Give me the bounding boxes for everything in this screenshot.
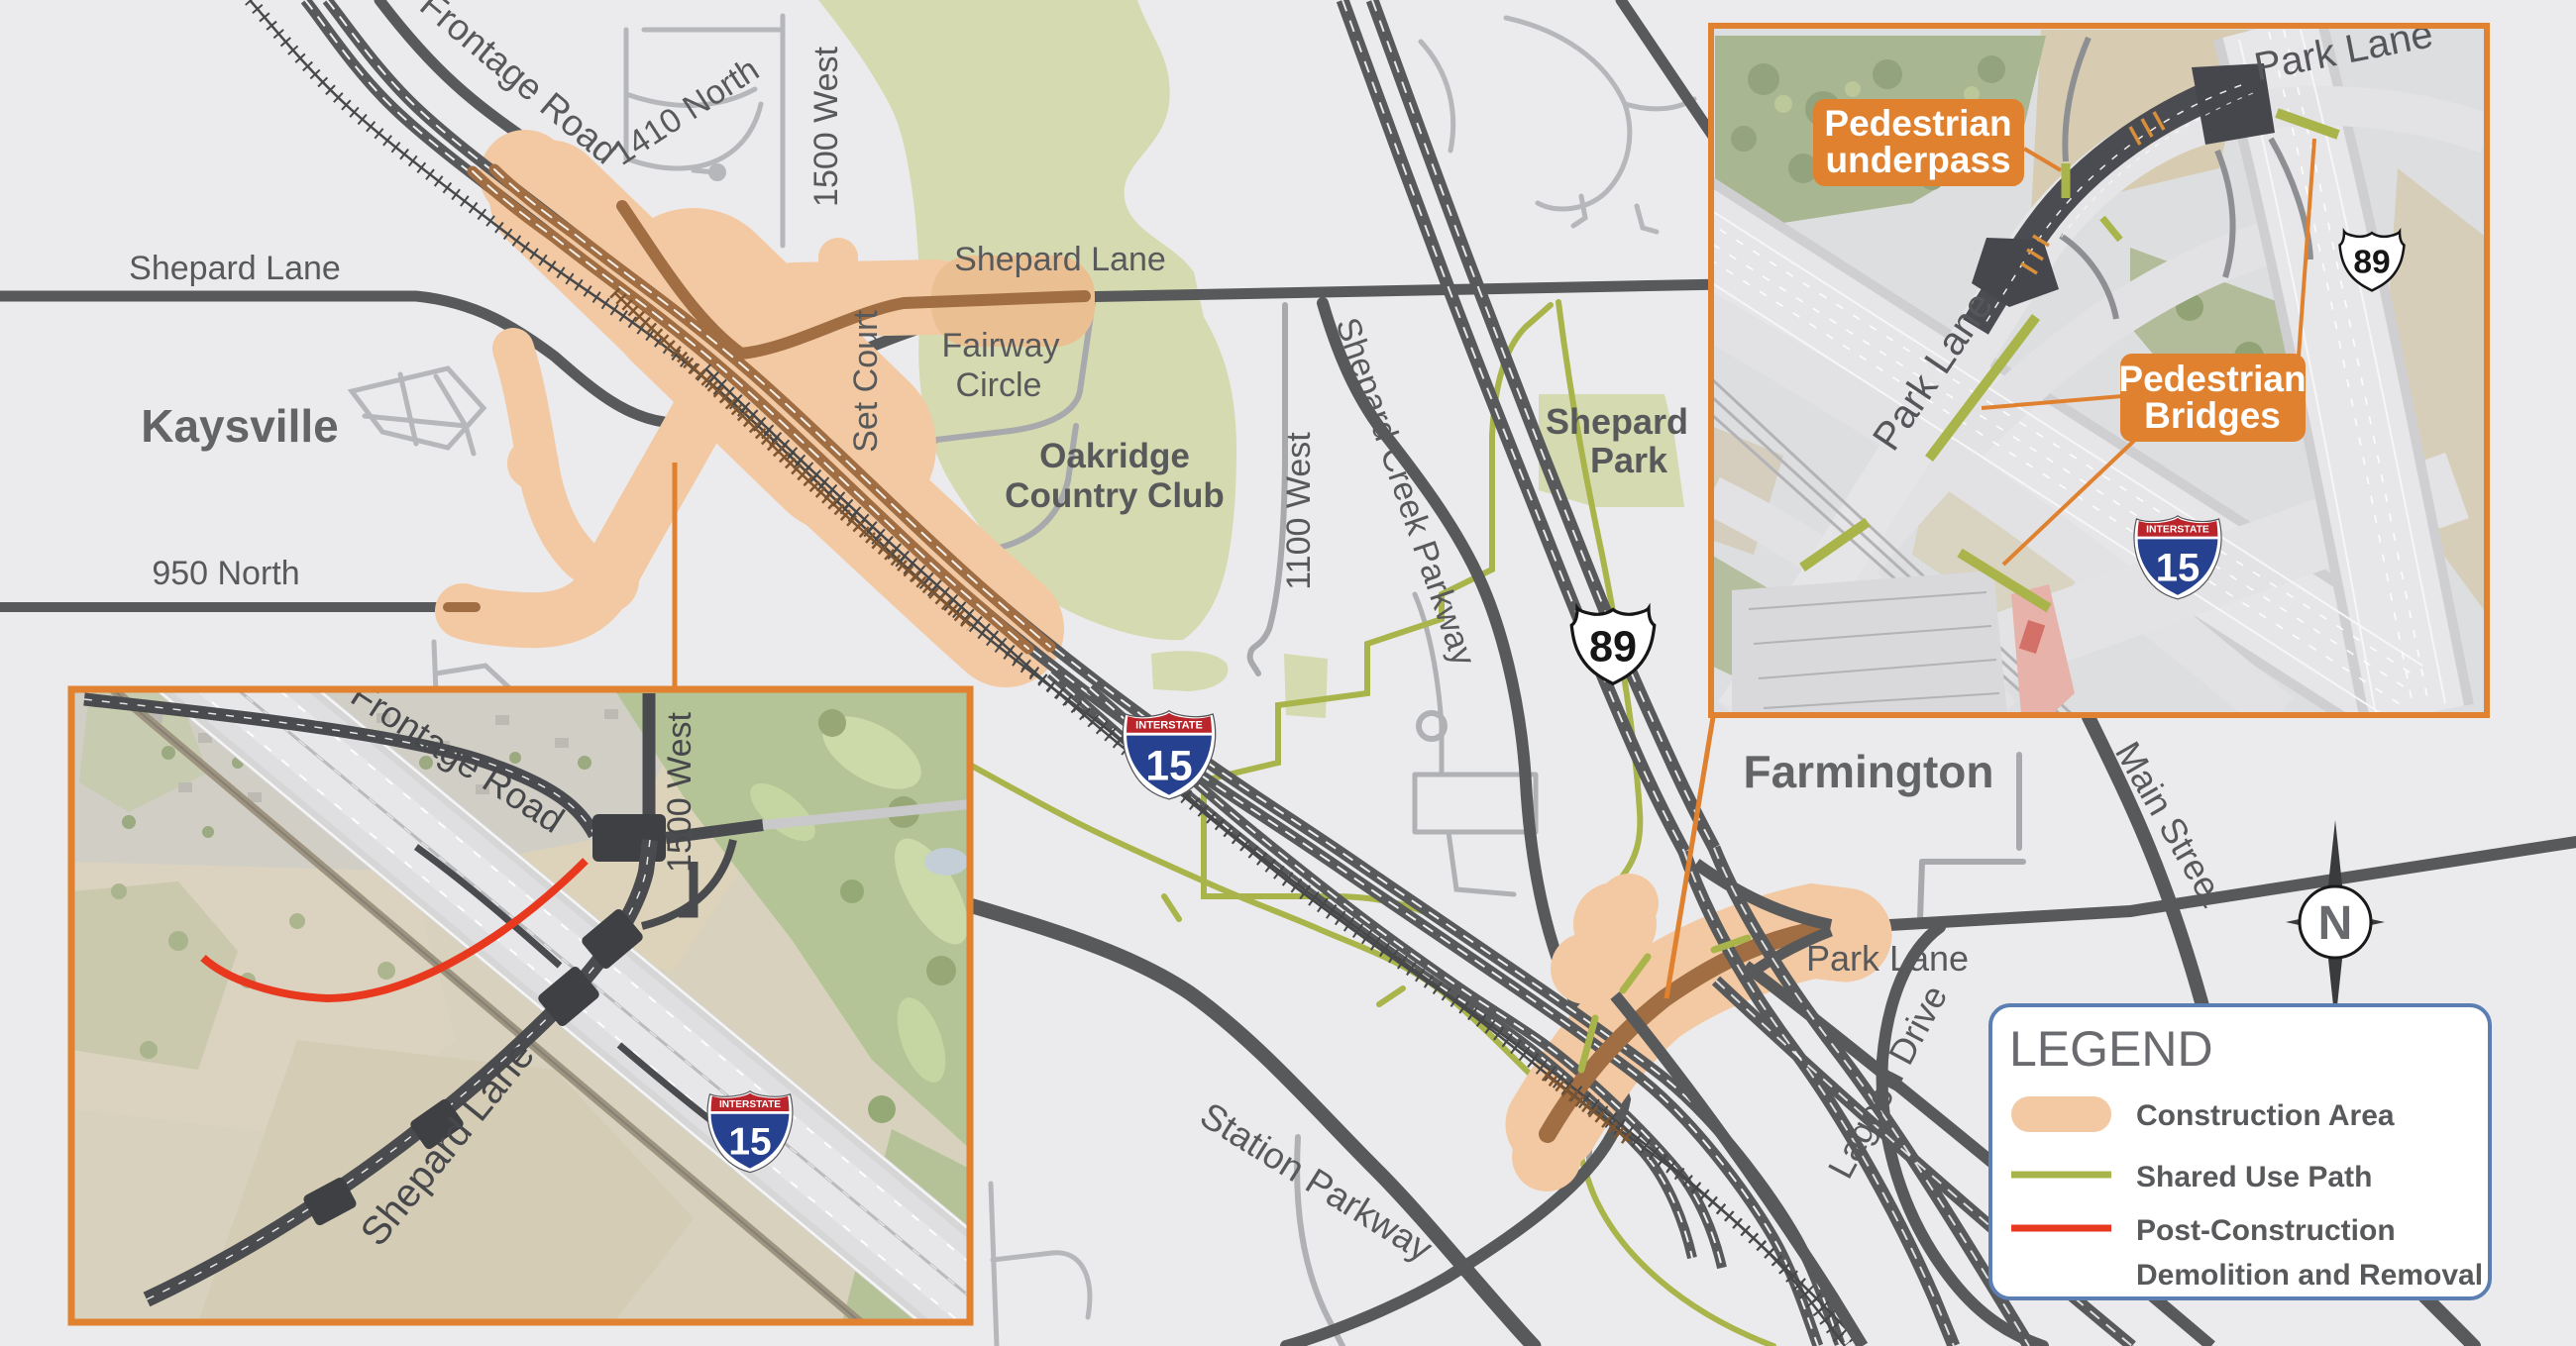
svg-text:Post-Construction: Post-Construction <box>2136 1214 2396 1247</box>
svg-text:Park: Park <box>1590 440 1668 480</box>
svg-text:LEGEND: LEGEND <box>2009 1021 2213 1077</box>
svg-text:1100 West: 1100 West <box>1280 432 1318 590</box>
svg-text:1500 West: 1500 West <box>807 46 845 206</box>
svg-text:Kaysville: Kaysville <box>141 400 338 452</box>
svg-text:underpass: underpass <box>1825 140 2010 180</box>
svg-text:Pedestrian: Pedestrian <box>1824 103 2011 144</box>
svg-text:Country Club: Country Club <box>1005 476 1225 515</box>
svg-text:Circle: Circle <box>956 366 1042 404</box>
svg-text:Farmington: Farmington <box>1744 746 1994 797</box>
svg-text:N: N <box>2318 897 2353 950</box>
svg-text:Demolition and Removal: Demolition and Removal <box>2136 1259 2483 1292</box>
svg-text:Shepard: Shepard <box>1546 401 1688 442</box>
svg-text:950 North: 950 North <box>152 555 299 592</box>
svg-text:Oakridge: Oakridge <box>1039 437 1190 475</box>
svg-text:Shepard Lane: Shepard Lane <box>129 250 341 287</box>
svg-text:Construction Area: Construction Area <box>2136 1099 2395 1132</box>
svg-text:Pedestrian: Pedestrian <box>2118 359 2306 399</box>
svg-text:1500 West: 1500 West <box>661 711 698 872</box>
svg-text:Set Court: Set Court <box>847 310 885 453</box>
svg-text:Bridges: Bridges <box>2144 395 2281 436</box>
svg-text:Shepard Lane: Shepard Lane <box>954 241 1166 278</box>
svg-text:Shared Use Path: Shared Use Path <box>2136 1161 2372 1193</box>
svg-text:Fairway: Fairway <box>941 327 1059 364</box>
svg-text:Park Lane: Park Lane <box>1806 938 1969 979</box>
